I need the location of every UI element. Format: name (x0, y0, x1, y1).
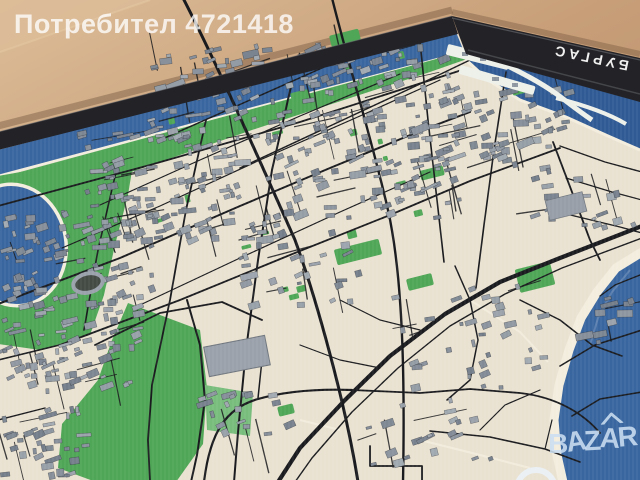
scene (0, 0, 640, 480)
photo-3d-printed-city-map: Потребител 4721418 БУРГАС BAZAR (0, 0, 640, 480)
